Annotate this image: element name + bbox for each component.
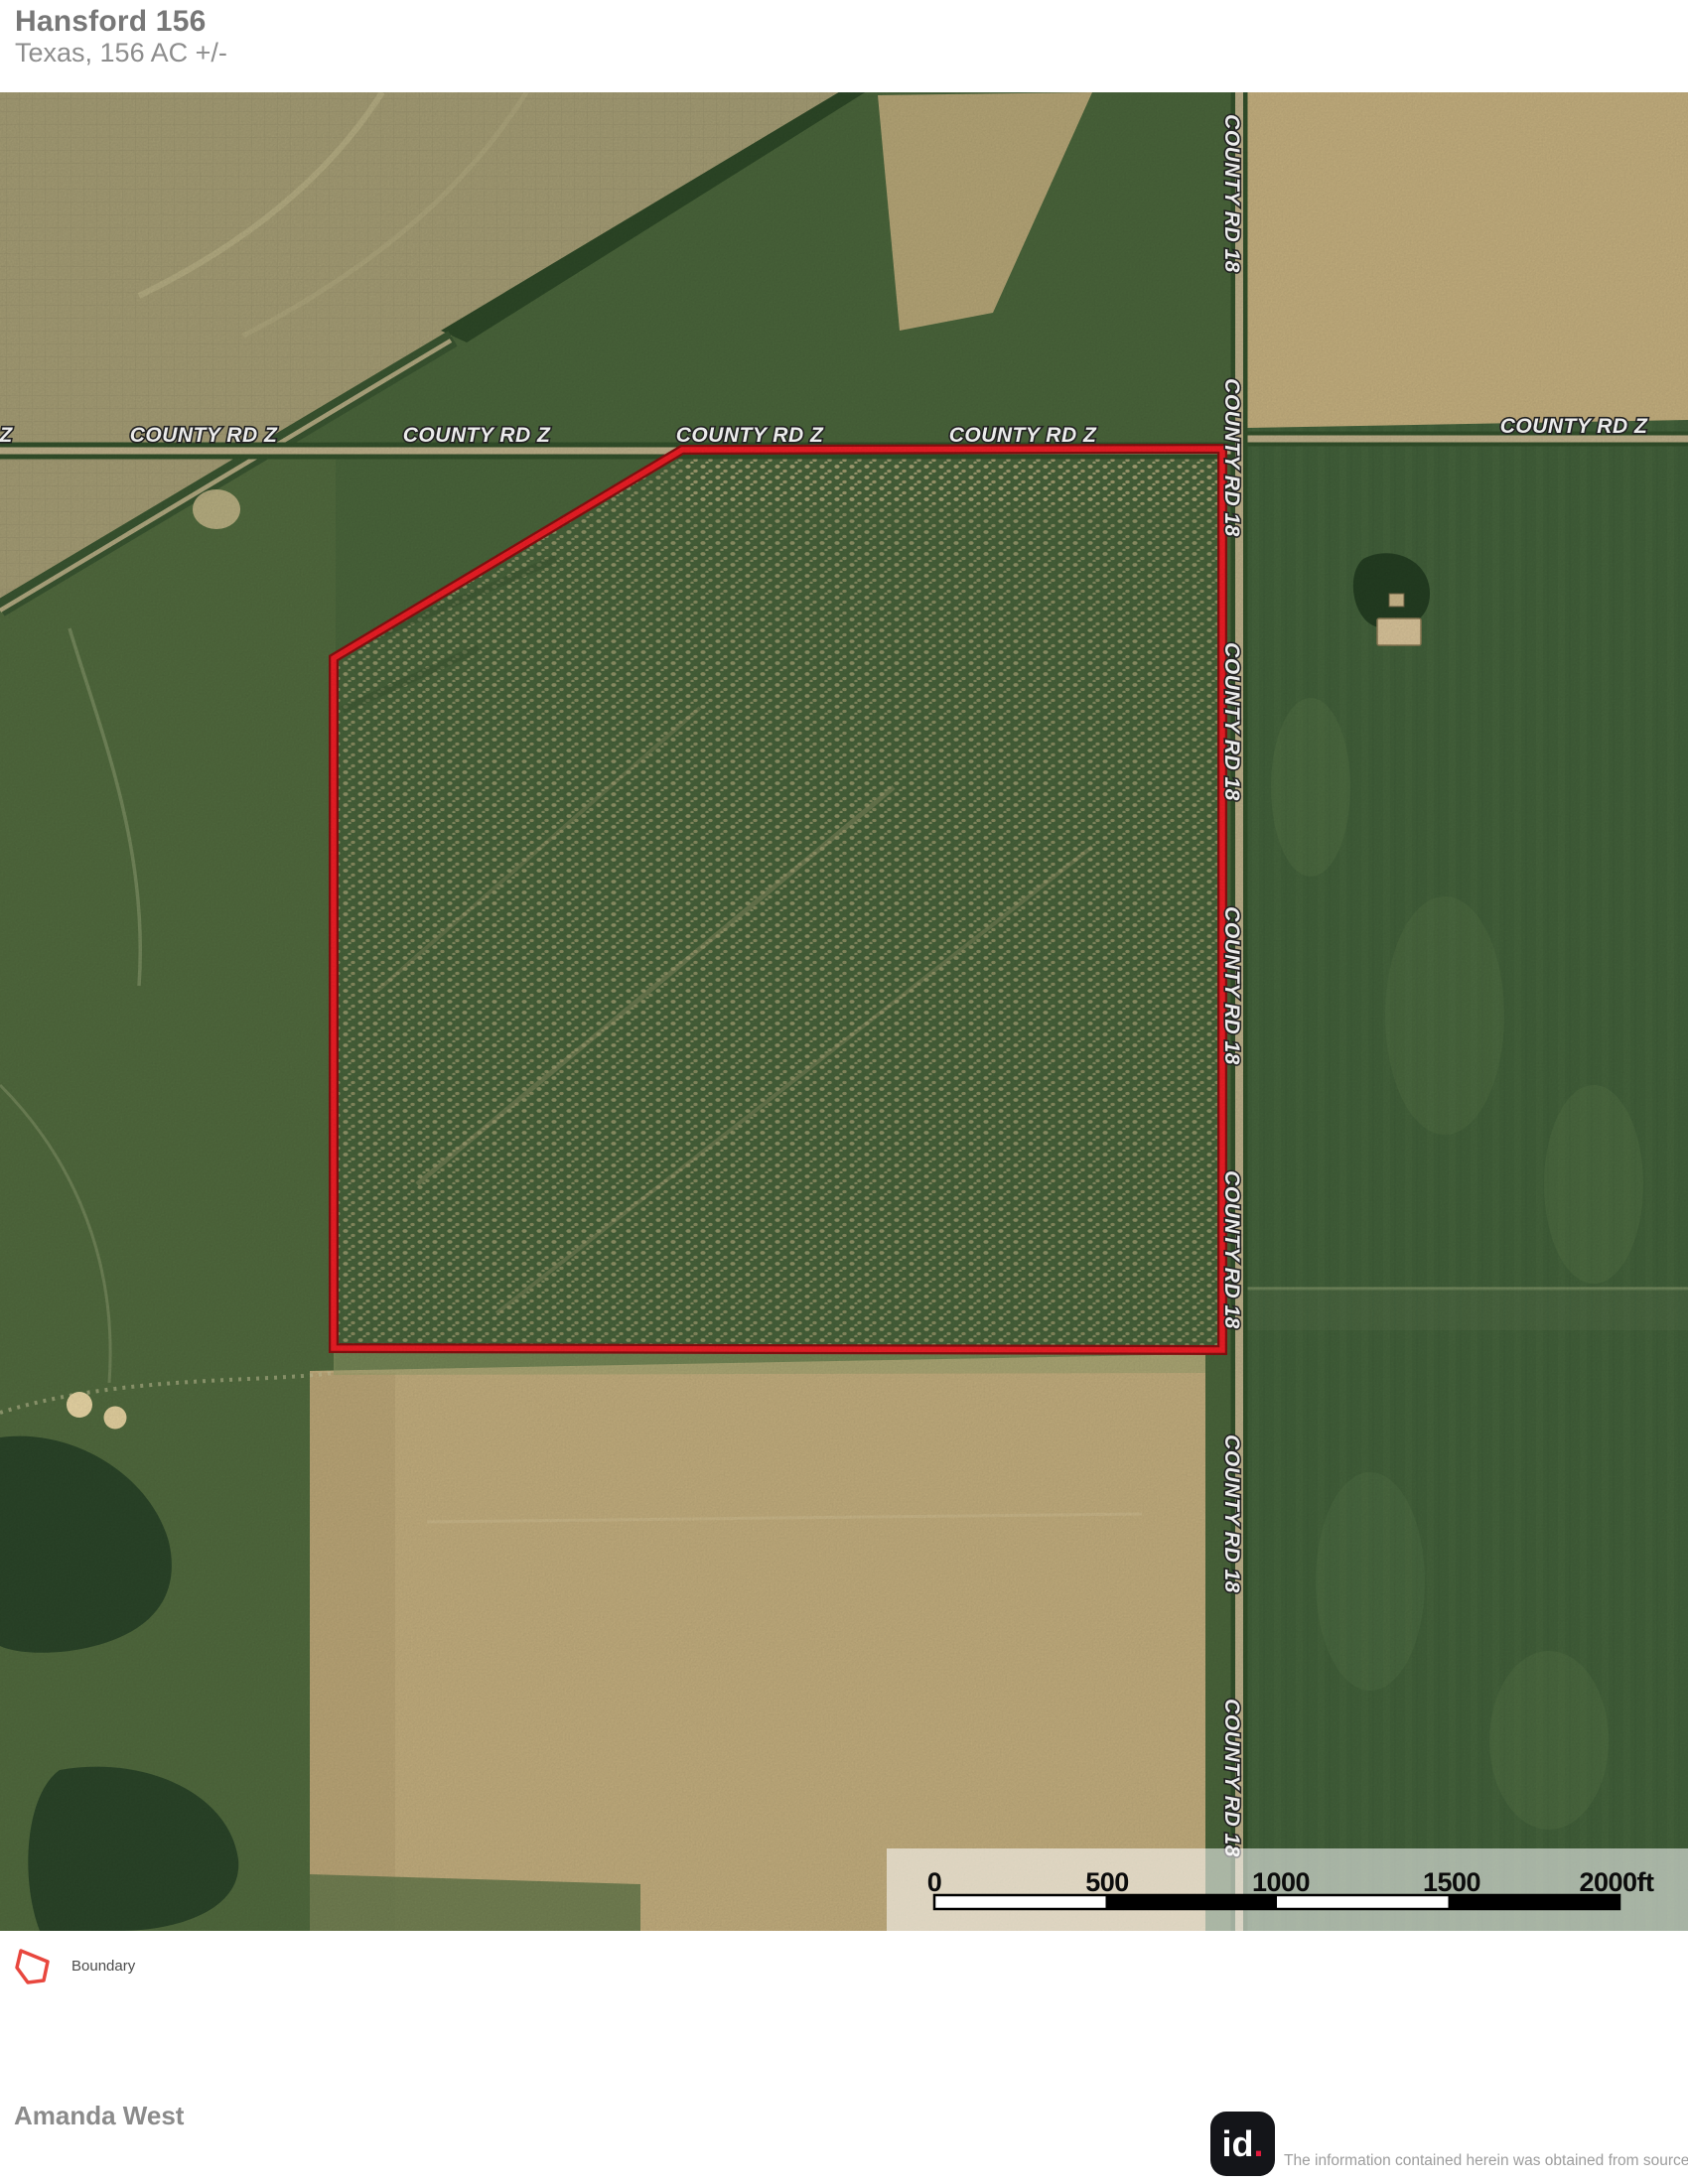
header: Hansford 156 Texas, 156 AC +/-	[15, 6, 227, 68]
legend-item-label: Boundary	[71, 1958, 135, 1975]
agent-name: Amanda West	[14, 2101, 184, 2131]
scale-tick: 1000	[1252, 1867, 1310, 1897]
map-legend: Boundary	[13, 1946, 135, 1985]
disclaimer: The information contained herein was obt…	[1284, 2113, 1688, 2184]
page-subtitle: Texas, 156 AC +/-	[15, 38, 227, 68]
logo-dot: .	[1253, 2123, 1263, 2165]
scale-tick: 2000ft	[1579, 1867, 1654, 1897]
page-title: Hansford 156	[15, 6, 227, 38]
logo-id-text: id	[1221, 2123, 1253, 2165]
scale-tick: 0	[927, 1867, 942, 1897]
satellite-map: Z COUNTY RD Z COUNTY RD Z COUNTY RD Z CO…	[0, 92, 1688, 1931]
map-canvas: Z COUNTY RD Z COUNTY RD Z COUNTY RD Z CO…	[0, 92, 1688, 1931]
grain-overlay	[0, 92, 1688, 1931]
scale-tick: 1500	[1423, 1867, 1480, 1897]
disclaimer-line: The information contained herein was obt…	[1284, 2151, 1688, 2171]
boundary-legend-icon	[13, 1946, 51, 1985]
scale-tick: 500	[1085, 1867, 1129, 1897]
scale-bar: 0 500 1000 1500 2000ft	[887, 1848, 1688, 1931]
map-report-page: Hansford 156 Texas, 156 AC +/-	[0, 0, 1688, 2184]
land-id-logo: id.	[1210, 2112, 1275, 2176]
